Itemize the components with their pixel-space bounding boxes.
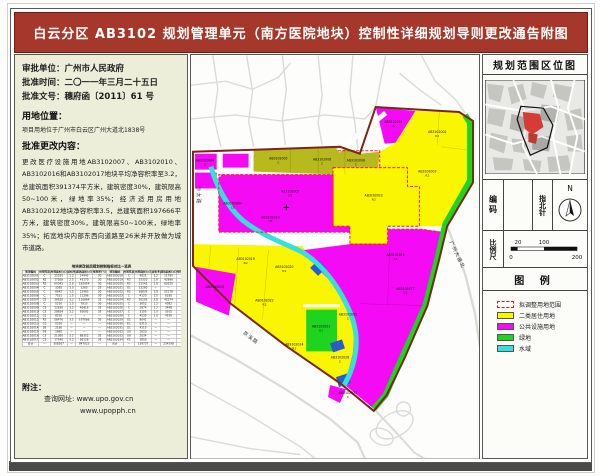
scale-label-cell: 比例尺 <box>483 231 504 267</box>
legend-label: 二类居住用地 <box>519 311 555 320</box>
scale-bar-cell: 20 100 0 200 <box>504 231 587 267</box>
planning-map: AB3102001CAB3102002R2AB3102003R2AB310200… <box>191 55 479 459</box>
notes-heading: 附注： <box>22 382 181 393</box>
legend-title: 图 例 <box>483 268 587 291</box>
svg-text:R2: R2 <box>244 261 248 265</box>
svg-text:R2: R2 <box>263 303 267 307</box>
svg-text:C5: C5 <box>288 193 292 197</box>
compass-label: 指北针 <box>538 195 548 216</box>
svg-text:R2: R2 <box>425 174 429 178</box>
svg-text:R2: R2 <box>292 346 296 350</box>
query-url-1: 查询网址: www.upo.gov.cn <box>44 393 181 405</box>
legend-swatch <box>497 345 514 352</box>
scale-tick-200: 200 <box>571 255 582 261</box>
scale-row: 比例尺 20 100 0 200 <box>483 231 587 268</box>
svg-text:沙太路: 沙太路 <box>195 186 202 204</box>
location-map-title: 规划范围区位图 <box>483 55 587 75</box>
indicators-table-body: 地块编码用地性质用地面积(㎡)容积率建筑面积(㎡)绿地率(%)地块编码用地性质用… <box>22 271 181 347</box>
legend-item: 绿地 <box>497 332 587 343</box>
svg-text:C: C <box>204 163 206 167</box>
query-url-2: www.upopph.cn <box>80 405 181 417</box>
svg-text:C: C <box>321 162 323 166</box>
svg-text:C: C <box>347 317 349 321</box>
indicators-table-wrap: 地块更改前后规划控制指标对比一览表 地块编码用地性质用地面积(㎡)容积率建筑面积… <box>22 264 181 348</box>
notice-sheet: 白云分区 AB3102 规划管理单元（南方医院地块）控制性详细规划导则更改通告附… <box>10 8 592 463</box>
compass-cell: N <box>553 180 587 230</box>
legend-label: 绿地 <box>519 333 531 342</box>
legend-panel: 规划范围区位图 <box>482 54 588 459</box>
svg-text:R2: R2 <box>435 134 439 138</box>
svg-text:R2: R2 <box>372 197 376 201</box>
location-text: 项目用地位于广州市白云区广州大道北1838号 <box>22 125 181 134</box>
legend-item: 公共设施用地 <box>497 321 587 332</box>
approval-date: 批准时间：二〇一一年三月二十五日 <box>22 76 181 90</box>
approval-doc: 批准文号：穗府函〔2011〕61 号 <box>22 90 181 104</box>
legend-item: 二类居住用地 <box>497 310 587 321</box>
svg-text:C5: C5 <box>231 205 235 209</box>
table-row: 合计—308267—847023—合计—139737—234198— <box>22 343 181 347</box>
code-label: 编码 <box>488 195 499 215</box>
legend-swatch <box>497 301 514 308</box>
approval-unit: 审批单位：广州市人民政府 <box>22 62 181 76</box>
scale-label: 比例尺 <box>488 239 498 260</box>
legend-swatch <box>497 334 514 341</box>
info-panel: 审批单位：广州市人民政府 批准时间：二〇一一年三月二十五日 批准文号：穗府函〔2… <box>14 54 188 459</box>
legend-label: 水域 <box>519 344 531 353</box>
legend-label: 公共设施用地 <box>519 322 555 331</box>
scale-tick-20: 20 <box>514 240 521 246</box>
location-heading: 用地位置： <box>22 111 181 123</box>
legend-item: 拟调整用地范围 <box>497 299 587 310</box>
compass-n: N <box>567 184 573 193</box>
indicators-table-title: 地块更改前后规划控制指标对比一览表 <box>22 264 181 269</box>
svg-text:G1: G1 <box>319 328 323 332</box>
svg-text:C: C <box>393 124 395 128</box>
scale-tick-100: 100 <box>538 240 549 246</box>
location-map <box>483 75 587 180</box>
map-panel: AB3102001CAB3102002R2AB3102003R2AB310200… <box>190 54 480 459</box>
legend-item: 水域 <box>497 343 587 354</box>
svg-text:C: C <box>339 359 341 363</box>
svg-text:C: C <box>214 289 216 293</box>
changes-text: 更改医疗设施用地AB3102007、AB3102010、AB3102016和AB… <box>22 156 181 254</box>
legend-swatch <box>497 312 514 319</box>
location-map-image <box>485 80 585 174</box>
page-title: 白云分区 AB3102 规划管理单元（南方医院地块）控制性详细规划导则更改通告附… <box>14 12 588 53</box>
north-arrow-icon: N <box>554 182 586 228</box>
svg-text:C5: C5 <box>394 257 398 261</box>
svg-text:C: C <box>355 163 357 167</box>
code-compass-row: 编码 指北针 N <box>483 180 587 231</box>
legend-swatch <box>497 323 514 330</box>
compass-label-cell: 指北针 <box>533 180 553 230</box>
svg-text:C5: C5 <box>404 291 408 295</box>
notes-block: 附注： 查询网址: www.upo.gov.cn www.upopph.cn <box>22 382 181 417</box>
svg-text:C: C <box>277 161 279 165</box>
svg-text:C5: C5 <box>268 219 272 223</box>
legend-label: 拟调整用地范围 <box>519 300 561 309</box>
legend-items: 拟调整用地范围二类居住用地公共设施用地绿地水域 <box>483 291 587 458</box>
code-label-cell: 编码 <box>483 180 504 230</box>
code-value-cell <box>504 180 533 230</box>
svg-text:R2: R2 <box>282 269 286 273</box>
scale-bar: 20 100 0 200 <box>505 237 587 261</box>
svg-text:C: C <box>347 395 349 399</box>
indicators-table: 地块编码用地性质用地面积(㎡)容积率建筑面积(㎡)绿地率(%)地块编码用地性质用… <box>22 270 181 347</box>
scale-tick-0: 0 <box>509 255 513 261</box>
changes-heading: 批准更改内容： <box>22 141 181 153</box>
